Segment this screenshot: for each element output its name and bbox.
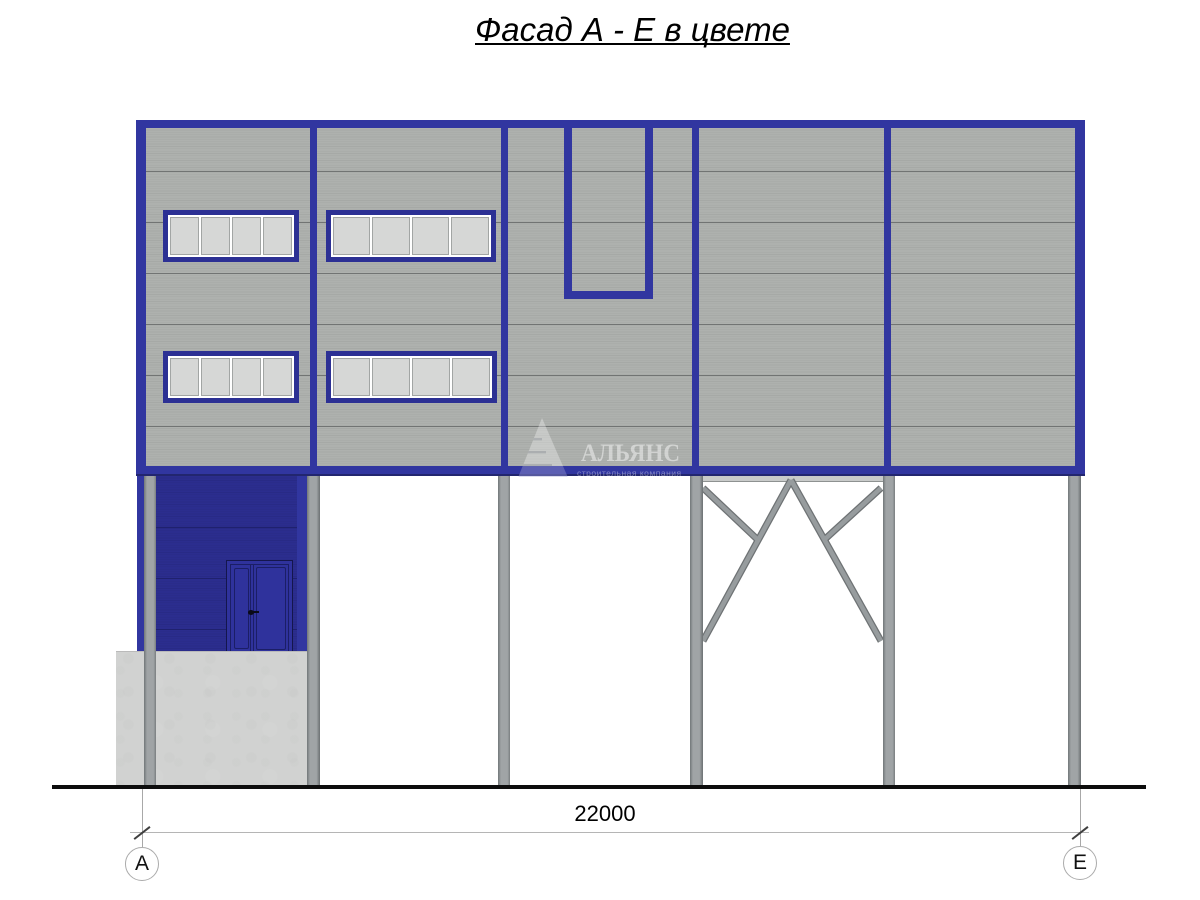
svg-text:строительная компания: строительная компания xyxy=(577,468,682,478)
svg-text:АЛЬЯНС: АЛЬЯНС xyxy=(581,440,680,467)
